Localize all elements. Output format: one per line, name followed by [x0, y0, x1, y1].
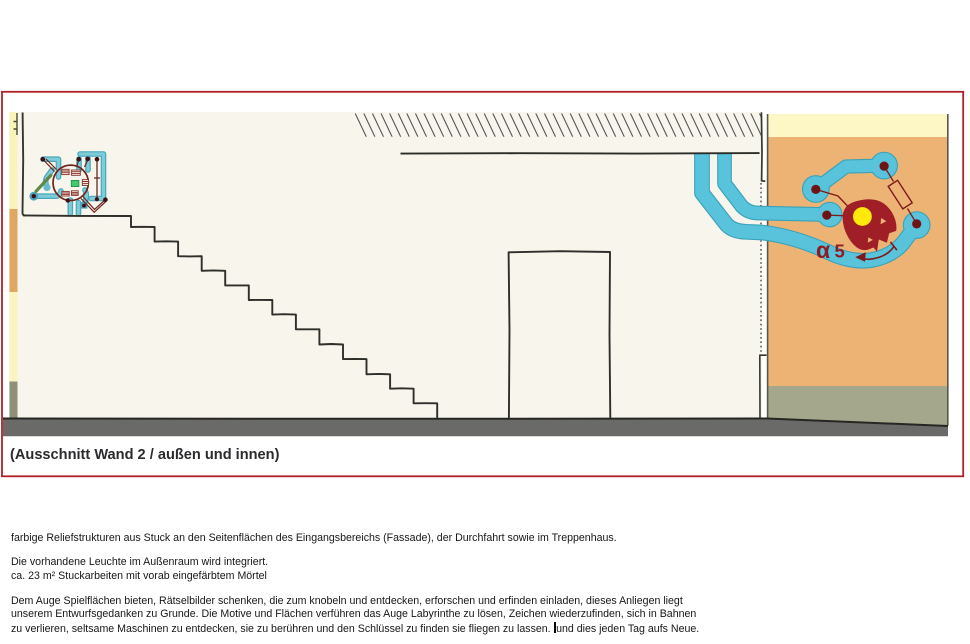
- svg-text:α: α: [816, 237, 830, 263]
- svg-text:5: 5: [835, 241, 845, 262]
- svg-text:(Ausschnitt Wand 2 / außen und: (Ausschnitt Wand 2 / außen und innen): [10, 447, 280, 463]
